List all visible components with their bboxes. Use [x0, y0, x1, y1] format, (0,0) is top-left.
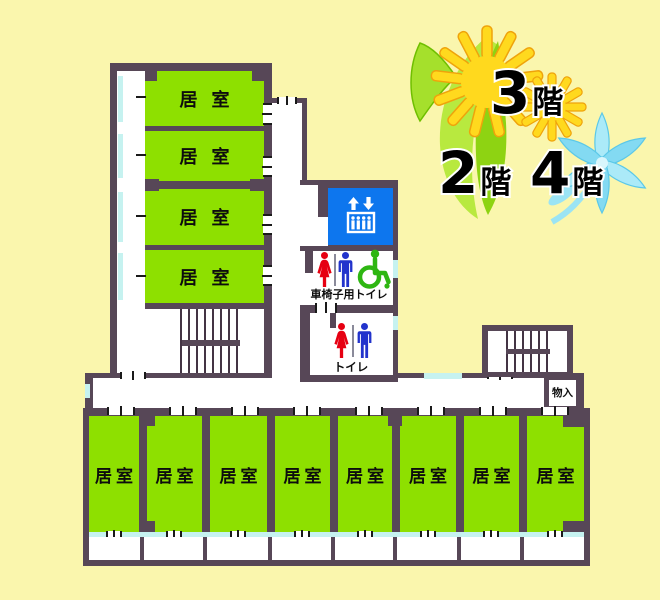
door-post: [145, 71, 157, 81]
window-tick: [136, 275, 146, 277]
room: 居室: [275, 416, 330, 532]
door: [355, 407, 383, 415]
room-label: 居室: [91, 462, 137, 487]
door: [169, 407, 197, 415]
door: [263, 265, 272, 286]
door: [263, 214, 272, 235]
balcony-divider: [203, 537, 207, 560]
room: 居室: [210, 416, 267, 532]
room-label: 居室: [216, 462, 262, 487]
room-label: 居室: [469, 462, 515, 487]
balcony-divider: [268, 537, 272, 560]
room-label: 居室: [342, 462, 388, 487]
door: [120, 372, 146, 379]
floor-decoration: 3階 2階 4階: [390, 15, 655, 235]
window-corridor-left: [85, 384, 90, 398]
room-label: 居室: [166, 204, 244, 230]
room-label: 居室: [166, 143, 244, 169]
storage-label: 物入: [543, 386, 582, 399]
window: [424, 373, 462, 379]
wall-post: [318, 185, 328, 217]
corridor-bottom-floor: [93, 378, 580, 408]
door: [107, 407, 135, 415]
window-tick: [136, 215, 146, 217]
floorplan: 居室 居室 居室 居室: [0, 0, 660, 600]
balcony-divider: [140, 537, 144, 560]
floor-label-3f: 3階: [490, 59, 563, 127]
door: [293, 407, 321, 415]
window-tick: [136, 96, 146, 98]
window-lw-4: [118, 253, 123, 300]
room-label: 居室: [280, 462, 326, 487]
room: 居室: [89, 416, 139, 532]
window: [393, 260, 398, 278]
stair-landing: [506, 349, 550, 354]
door-post: [139, 416, 155, 426]
door: [263, 103, 272, 125]
window: [393, 316, 398, 330]
door-post: [252, 71, 264, 81]
window-tick: [136, 154, 146, 156]
room-label: 居室: [166, 86, 244, 112]
door: [541, 407, 569, 415]
balcony: [89, 537, 584, 560]
icon-divider: [352, 325, 354, 357]
room-label: 居室: [533, 462, 579, 487]
window-lw-1: [118, 76, 123, 122]
room: 居室: [145, 189, 264, 245]
door: [479, 407, 507, 415]
toilet-label: トイレ: [320, 360, 382, 373]
room: 居室: [338, 416, 392, 532]
door: [277, 97, 297, 104]
room: 居室: [145, 250, 264, 303]
corridor-vertical-floor: [272, 103, 302, 378]
room: 居室: [147, 416, 202, 532]
door-post: [563, 416, 584, 427]
wheelchair-toilet-label: 車椅子用トイレ: [298, 287, 400, 300]
room: 居室: [527, 416, 584, 532]
door: [417, 407, 445, 415]
corridor-right-wall: [302, 98, 307, 185]
room-label: 居室: [152, 462, 198, 487]
door-post: [250, 179, 264, 191]
woman-icon: [333, 323, 350, 363]
balcony-divider: [520, 537, 524, 560]
icon-divider: [334, 254, 336, 286]
door-post: [139, 521, 155, 532]
balcony-divider: [331, 537, 335, 560]
window-lw-2: [118, 134, 123, 178]
room: 居室: [145, 71, 264, 126]
door-post: [145, 179, 159, 191]
room: 居室: [464, 416, 519, 532]
room: 居室: [145, 131, 264, 181]
room-label: 居室: [405, 462, 451, 487]
door: [231, 407, 259, 415]
wall-stub: [305, 251, 313, 273]
door-post: [563, 521, 584, 532]
elevator-icon: [346, 196, 376, 238]
stair-landing: [182, 340, 240, 346]
elevator: [328, 188, 393, 245]
room-label: 居室: [166, 264, 244, 290]
door-post: [388, 416, 402, 426]
door: [263, 156, 272, 177]
man-icon: [356, 323, 373, 363]
window-lw-3: [118, 192, 123, 242]
balcony-divider: [393, 537, 397, 560]
room: 居室: [400, 416, 456, 532]
balcony-divider: [457, 537, 461, 560]
